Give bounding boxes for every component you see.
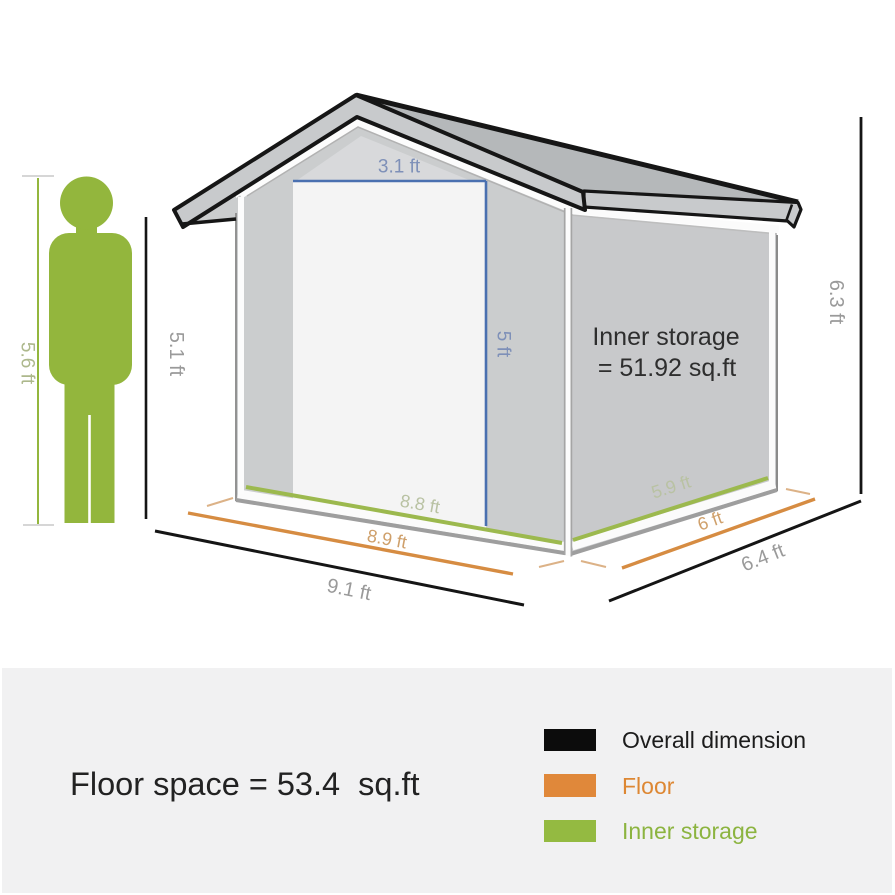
svg-text:= 51.92 sq.ft: = 51.92 sq.ft [598,354,736,382]
svg-text:Floor space = 53.4 sq.ft: Floor space = 53.4 sq.ft [70,766,420,802]
svg-text:Floor: Floor [622,773,675,799]
svg-text:3.1 ft: 3.1 ft [378,157,421,178]
svg-text:5.1 ft: 5.1 ft [165,332,187,377]
svg-text:Inner storage: Inner storage [592,323,739,351]
svg-text:5 ft: 5 ft [493,331,514,358]
svg-text:Overall dimension: Overall dimension [622,727,806,753]
svg-text:Inner storage: Inner storage [622,818,758,844]
svg-text:6.3 ft: 6.3 ft [825,280,847,325]
svg-text:5.6 ft: 5.6 ft [17,342,38,385]
